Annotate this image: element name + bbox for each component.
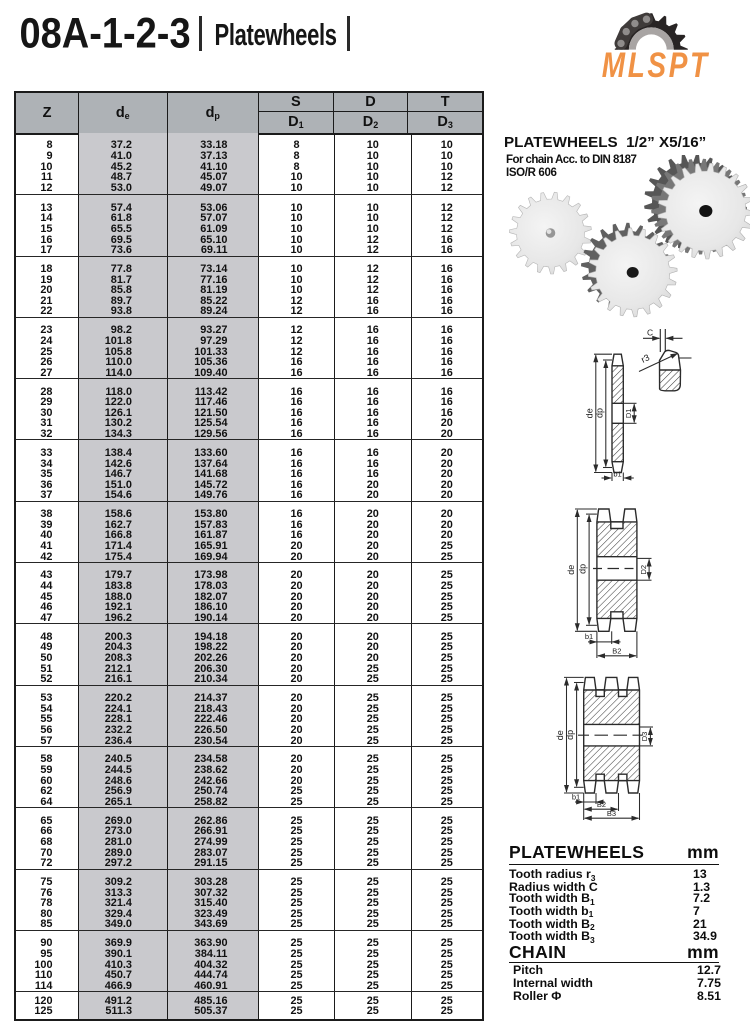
svg-text:dp: dp — [565, 730, 575, 740]
svg-text:B2: B2 — [597, 800, 606, 809]
svg-text:D2: D2 — [639, 565, 648, 575]
svg-text:de: de — [585, 408, 595, 418]
svg-text:b1: b1 — [572, 792, 580, 801]
svg-text:D3: D3 — [640, 732, 649, 742]
svg-text:b1: b1 — [613, 470, 621, 479]
svg-text:B2: B2 — [612, 647, 621, 656]
svg-text:r3: r3 — [639, 352, 651, 365]
svg-text:b1: b1 — [585, 632, 593, 641]
svg-text:dp: dp — [594, 408, 604, 418]
svg-text:D1: D1 — [624, 409, 633, 419]
svg-text:B3: B3 — [607, 809, 616, 818]
svg-text:dp: dp — [578, 564, 588, 574]
svg-text:de: de — [555, 730, 565, 740]
svg-text:MLSPT: MLSPT — [602, 45, 710, 85]
svg-text:de: de — [566, 565, 576, 575]
svg-text:C: C — [647, 328, 653, 338]
